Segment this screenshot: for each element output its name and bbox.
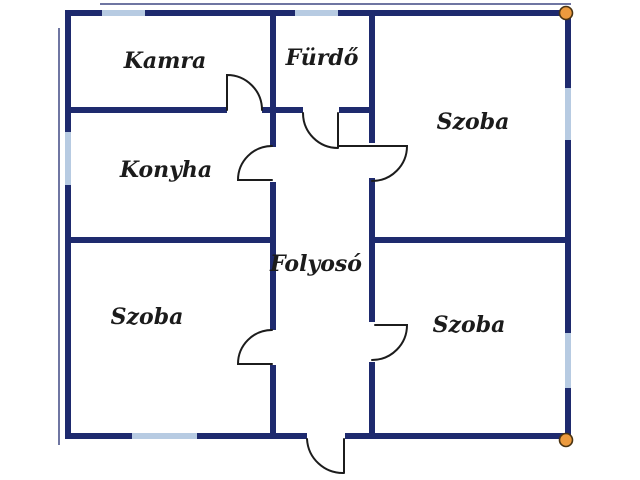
wall-kamra-konyha-stub <box>262 107 270 113</box>
door-szoba-bottom-left <box>238 330 272 364</box>
window-furdo-top <box>295 10 338 16</box>
wall-corridor-left-upper <box>270 14 276 147</box>
wall-corridor-right-lower <box>369 362 375 433</box>
floor-plan: Kamra Fürdő Szoba Konyha Folyosó Szoba S… <box>0 0 640 480</box>
door-szoba-bottom-right <box>372 325 407 360</box>
room-label-furdo: Fürdő <box>285 45 359 71</box>
window-kamra-top <box>102 10 145 16</box>
floor-plan-svg: Kamra Fürdő Szoba Konyha Folyosó Szoba S… <box>0 0 640 480</box>
windows <box>65 10 571 439</box>
corner-marker-top-right <box>560 7 573 20</box>
corner-marker-bottom-right <box>560 434 573 447</box>
room-label-szoba-top-right: Szoba <box>437 109 510 135</box>
window-szoba-top-right <box>565 88 571 140</box>
door-furdo <box>303 113 338 148</box>
wall-corridor-left-lower <box>270 365 276 433</box>
window-szoba-bottom-right <box>565 333 571 388</box>
door-konyha <box>238 146 272 180</box>
room-labels: Kamra Fürdő Szoba Konyha Folyosó Szoba S… <box>111 45 510 338</box>
wall-outer-bottom-right-of-entrance <box>345 433 571 439</box>
window-szoba-bottom-left <box>132 433 197 439</box>
room-label-folyoso: Folyosó <box>269 251 362 277</box>
room-label-szoba-bottom-right: Szoba <box>433 312 506 338</box>
wall-furdo-bottom-right <box>339 107 369 113</box>
wall-kamra-konyha <box>71 107 227 113</box>
wall-outer-left <box>65 10 71 439</box>
door-szoba-top-right <box>338 146 407 181</box>
room-label-kamra: Kamra <box>123 48 207 74</box>
wall-furdo-bottom-left <box>276 107 303 113</box>
wall-szoba-szoba <box>375 237 565 243</box>
wall-konyha-szoba <box>71 237 270 243</box>
wall-corridor-right-upper <box>369 14 375 143</box>
door-kamra <box>227 75 262 110</box>
door-entrance <box>307 439 344 473</box>
room-label-konyha: Konyha <box>119 157 212 183</box>
room-label-szoba-bottom-left: Szoba <box>111 304 184 330</box>
window-konyha-left <box>65 132 71 185</box>
walls <box>65 10 571 439</box>
wall-corridor-right-middle <box>369 178 375 322</box>
